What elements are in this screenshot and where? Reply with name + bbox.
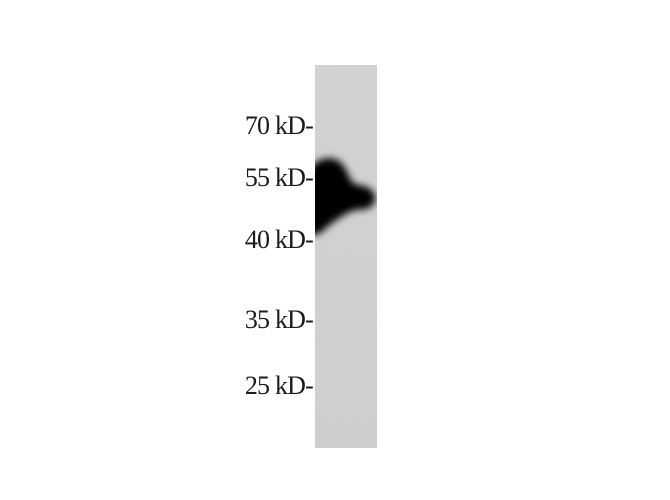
lane-grain-texture: [315, 65, 377, 448]
marker-label-40kd: 40 kD-: [193, 227, 313, 253]
western-blot-figure: 70 kD- 55 kD- 40 kD- 35 kD- 25 kD-: [0, 0, 670, 500]
marker-label-55kd: 55 kD-: [193, 165, 313, 191]
gel-lane: [315, 65, 377, 448]
marker-label-70kd: 70 kD-: [193, 113, 313, 139]
marker-label-25kd: 25 kD-: [193, 373, 313, 399]
marker-label-35kd: 35 kD-: [193, 307, 313, 333]
band-layer: [315, 65, 377, 448]
